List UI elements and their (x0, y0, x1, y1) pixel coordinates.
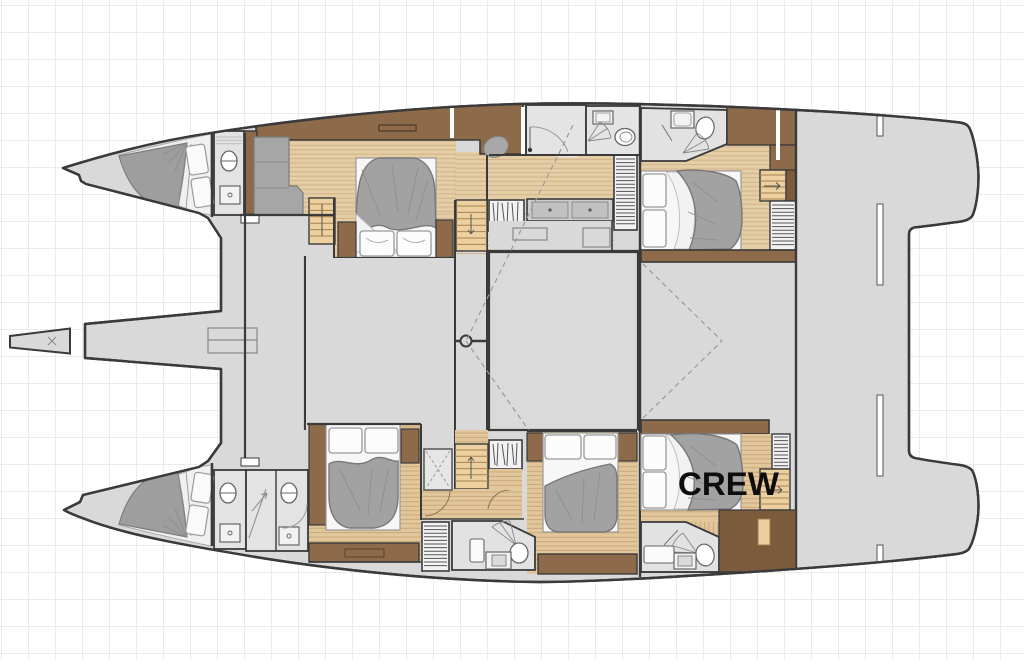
svg-text:CREW: CREW (678, 466, 779, 502)
